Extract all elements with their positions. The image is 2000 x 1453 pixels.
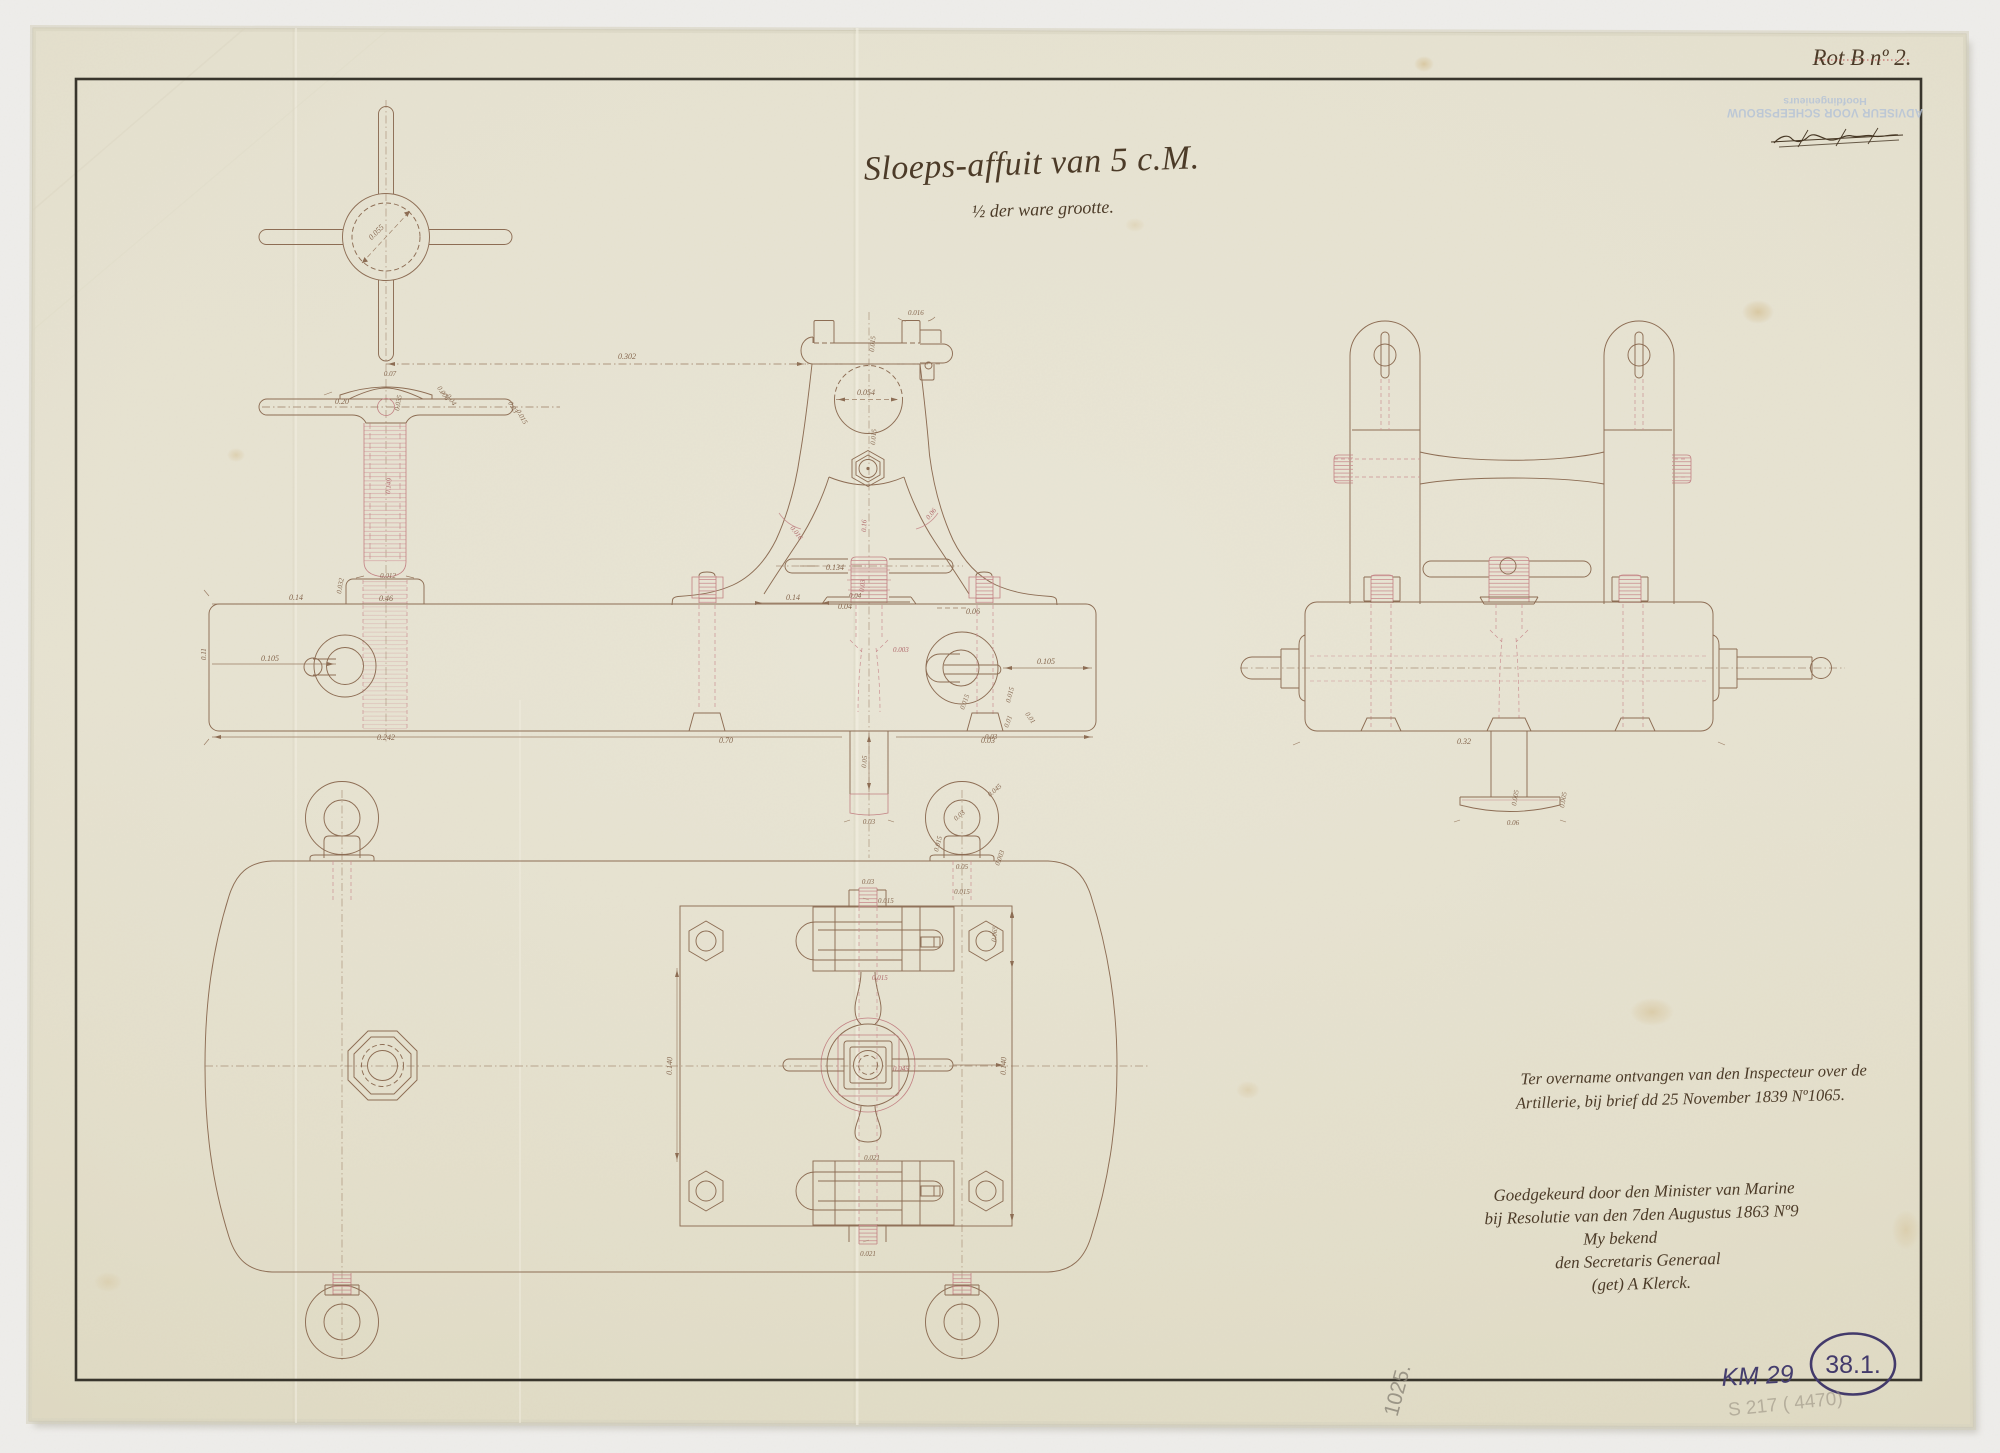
svg-text:0.140: 0.140 — [665, 1057, 675, 1075]
svg-text:0.20: 0.20 — [335, 397, 349, 406]
svg-text:0.021: 0.021 — [860, 1250, 876, 1258]
svg-text:0.46: 0.46 — [379, 594, 393, 603]
svg-text:ADVISEUR VOOR SCHEEPSBOUW: ADVISEUR VOOR SCHEEPSBOUW — [1727, 106, 1923, 118]
svg-text:0.015: 0.015 — [878, 897, 894, 905]
svg-text:0.70: 0.70 — [719, 736, 733, 745]
svg-text:Hoofdingenieurs: Hoofdingenieurs — [1783, 95, 1867, 107]
svg-text:0.015: 0.015 — [954, 888, 970, 896]
svg-text:0.242: 0.242 — [377, 733, 395, 742]
svg-text:0.015: 0.015 — [872, 974, 888, 982]
svg-text:0.11: 0.11 — [200, 648, 208, 660]
svg-text:0.149: 0.149 — [384, 477, 393, 494]
svg-text:0.140: 0.140 — [999, 1057, 1009, 1075]
svg-text:0.015: 0.015 — [869, 428, 878, 445]
svg-text:0.14: 0.14 — [289, 593, 303, 602]
svg-text:0.105: 0.105 — [261, 654, 279, 663]
svg-text:0.05: 0.05 — [860, 755, 869, 768]
svg-text:0.04: 0.04 — [838, 602, 852, 611]
svg-text:0.054: 0.054 — [857, 388, 875, 397]
svg-text:0.32: 0.32 — [1457, 737, 1471, 746]
svg-text:0.015: 0.015 — [868, 335, 877, 352]
svg-text:38.1.: 38.1. — [1825, 1351, 1881, 1379]
svg-text:Rot B nº 2.: Rot B nº 2. — [1811, 45, 1911, 70]
svg-text:0.134: 0.134 — [826, 563, 844, 572]
svg-text:(get) A Klerck.: (get) A Klerck. — [1592, 1273, 1692, 1295]
svg-text:0.045: 0.045 — [893, 1065, 909, 1073]
svg-text:0.302: 0.302 — [618, 352, 636, 361]
svg-text:0.07: 0.07 — [384, 370, 397, 378]
svg-text:My bekend: My bekend — [1582, 1228, 1658, 1249]
svg-text:KM 29: KM 29 — [1721, 1360, 1795, 1392]
svg-text:0.05: 0.05 — [956, 863, 969, 871]
svg-text:0.03: 0.03 — [985, 733, 998, 741]
svg-text:0.06: 0.06 — [1507, 819, 1520, 827]
svg-text:0.04: 0.04 — [849, 592, 862, 600]
svg-text:0.14: 0.14 — [786, 593, 800, 602]
svg-text:0.105: 0.105 — [1037, 657, 1055, 666]
svg-text:0.06: 0.06 — [966, 607, 980, 616]
svg-text:0.065: 0.065 — [990, 925, 999, 942]
svg-text:0.003: 0.003 — [893, 646, 909, 654]
svg-text:0.021: 0.021 — [864, 1154, 880, 1162]
svg-text:0.16: 0.16 — [860, 519, 868, 532]
svg-text:0.016: 0.016 — [908, 309, 924, 317]
svg-text:0.03: 0.03 — [862, 878, 875, 886]
svg-text:0.03: 0.03 — [858, 579, 867, 592]
svg-text:0.03: 0.03 — [863, 818, 876, 826]
